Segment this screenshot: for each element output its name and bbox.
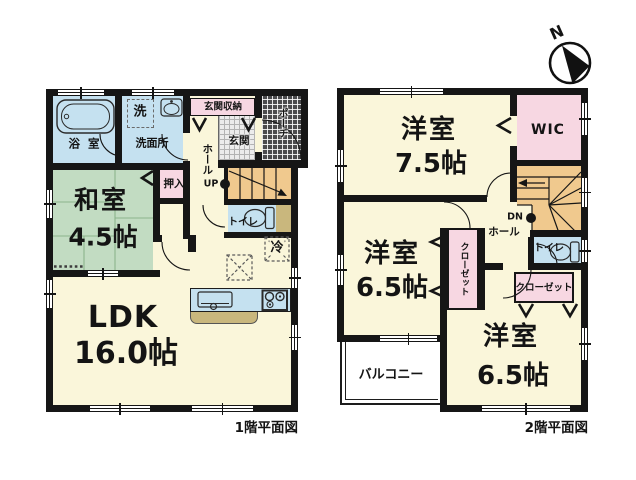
- f1-window-right-a: [291, 268, 298, 288]
- f2-window-right-wic: [581, 103, 588, 135]
- f1-window-bottom-a: [90, 405, 150, 412]
- f1-wall-bottom: [46, 405, 298, 412]
- f2-stairs-upper: [517, 166, 581, 205]
- f1-window-top-wash: [132, 89, 174, 96]
- f2-window-balcony: [380, 335, 437, 342]
- f2-wall-hall-bottom-b: [528, 263, 581, 270]
- f1-wall-oshiire-bottom: [155, 198, 190, 204]
- f1-ldk-size-label: 16.0帖: [74, 339, 178, 369]
- f2-toilet-label: トイレ: [534, 244, 564, 254]
- f2-balcony-label: バルコニー: [359, 369, 424, 382]
- f1-wall-wash-hall-a: [183, 96, 190, 133]
- f1-ldk-name-label: LDK: [88, 303, 158, 333]
- f2-window-right-stairs: [581, 178, 588, 207]
- f1-wall-hall-seg: [153, 235, 162, 242]
- f1-wall-bath-wash: [115, 96, 122, 168]
- f1-up-label: UP: [204, 179, 219, 189]
- f2-window-bottom: [482, 405, 570, 412]
- f1-bath-label: 浴 室: [68, 138, 101, 150]
- f1-wall-porch-right: [301, 89, 308, 166]
- f1-window-left-ldk: [46, 280, 53, 308]
- f2-bedroom3-name-label: 洋室: [483, 324, 539, 350]
- f1-window-right-b: [291, 325, 298, 350]
- f2-wall-closet-right: [479, 228, 485, 310]
- f2-closet-south-label: クローゼット: [515, 283, 572, 293]
- f1-sliding-door-washitsu: [88, 270, 118, 277]
- f1-window-top-bath: [58, 89, 104, 96]
- f1-wall-under-genkan: [218, 160, 308, 168]
- f2-dn-label: DN: [507, 212, 523, 222]
- floor-plan: N 浴 室 洗 洗面所 玄関収納 ポーチ 玄関 ホール UP 押入 和室 4.5…: [0, 0, 636, 480]
- f1-stairs: [228, 168, 291, 199]
- f2-bedroom2-name-label: 洋室: [364, 241, 420, 267]
- f1-washitsu-size-label: 4.5帖: [68, 225, 137, 250]
- f1-window-bottom-b: [192, 405, 253, 412]
- f2-bedroom2-size-label: 6.5帖: [356, 275, 428, 301]
- f2-window-right-bedroom: [581, 328, 588, 360]
- f1-toilet-counter: [276, 205, 291, 232]
- f2-wall-b1-wic-a: [510, 95, 517, 116]
- f1-wall-genkan-porch-a: [255, 96, 262, 118]
- f1-fridge-label: 冷: [269, 241, 284, 256]
- f2-wall-wic-bottom: [510, 160, 581, 166]
- f1-wall-stairs-left: [224, 168, 228, 203]
- f2-wall-b2-right: [440, 228, 447, 412]
- f2-bedroom3-size-label: 6.5帖: [477, 363, 549, 389]
- f1-oshiire-label: 押入: [164, 179, 185, 190]
- f2-bedroom1-name-label: 洋室: [401, 117, 457, 143]
- f2-hall-label: ホール: [488, 227, 520, 238]
- f1-entrance-storage-label: 玄関収納: [204, 102, 242, 112]
- f2-wall-stairs-bottom: [530, 230, 581, 237]
- f2-window-left-a: [337, 150, 344, 182]
- f1-washitsu-name-label: 和室: [74, 188, 128, 213]
- f1-wall-bath-bottom: [46, 163, 190, 170]
- compass-north-label: N: [548, 23, 567, 43]
- f1-toilet-label: トイレ: [228, 218, 258, 228]
- f1-window-left-washitsu: [46, 190, 53, 218]
- f2-wall-top: [337, 88, 588, 95]
- f1-hall-label: ホール: [202, 143, 213, 175]
- f2-wall-b1-bottom: [337, 195, 487, 202]
- f1-washroom-label: 洗面所: [136, 138, 169, 149]
- f1-wall-stairs-toilet: [224, 199, 291, 205]
- f2-wall-b1-wic-b: [510, 146, 517, 202]
- f1-washer-label: 洗: [133, 106, 146, 119]
- f2-closet-west-label: クローゼット: [459, 242, 468, 296]
- f1-wall-washitsu-right: [153, 168, 160, 242]
- f2-caption: 2階平面図: [525, 416, 588, 436]
- f2-window-right-toilet: [581, 240, 588, 262]
- f1-bathroom: [53, 96, 115, 163]
- f2-window-top: [380, 88, 443, 95]
- f2-bedroom1-size-label: 7.5帖: [395, 151, 467, 177]
- compass-icon: [550, 43, 590, 84]
- f1-caption: 1階平面図: [235, 416, 298, 436]
- f2-window-left-b: [337, 255, 344, 285]
- f2-stairs-lower: [532, 205, 581, 233]
- f2-wic-label: WIC: [531, 123, 565, 137]
- f1-porch-label: ポーチ: [276, 108, 286, 138]
- f1-dining-counter: [190, 312, 258, 324]
- f1-wall-left: [46, 89, 53, 412]
- f2-wall-left: [337, 88, 344, 342]
- f1-wall-ldk-stub: [188, 235, 196, 252]
- f1-entrance-label: 玄関: [229, 136, 250, 147]
- f1-wall-toilet-bottom: [224, 232, 291, 238]
- f1-kitchen-counter: [190, 288, 291, 312]
